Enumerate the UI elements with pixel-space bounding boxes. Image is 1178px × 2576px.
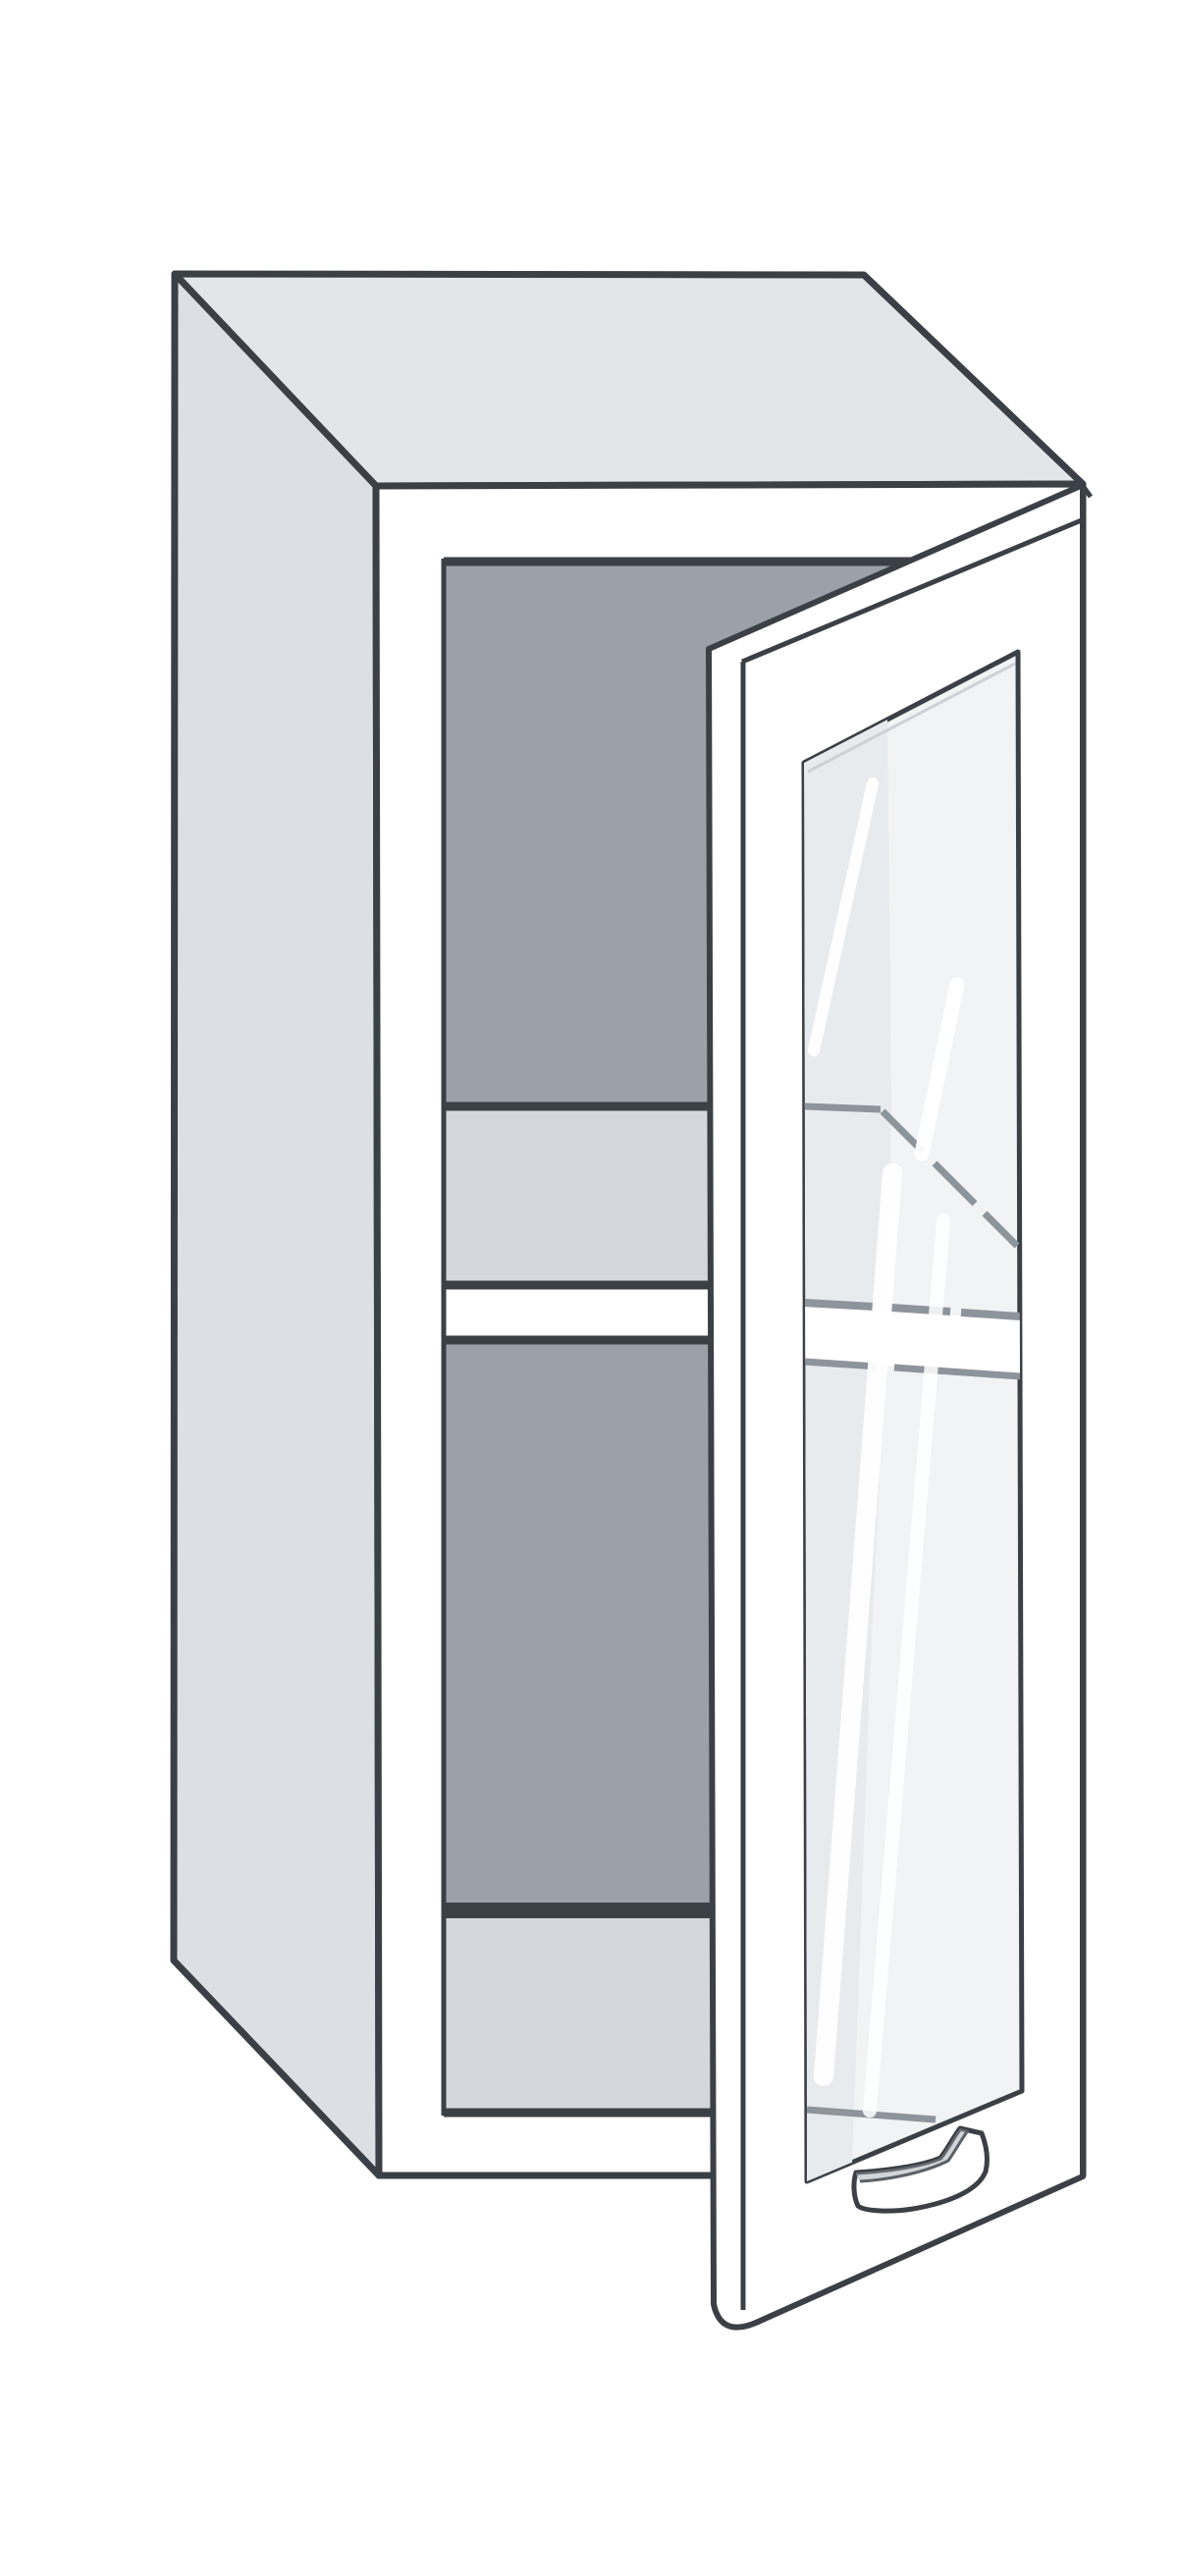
left-side-panel bbox=[174, 274, 379, 2175]
cabinet-illustration bbox=[0, 0, 1178, 2576]
cabinet-drawing-svg bbox=[0, 0, 1178, 2576]
glass-door bbox=[709, 485, 1084, 2328]
bottom-floor bbox=[444, 1907, 756, 2116]
